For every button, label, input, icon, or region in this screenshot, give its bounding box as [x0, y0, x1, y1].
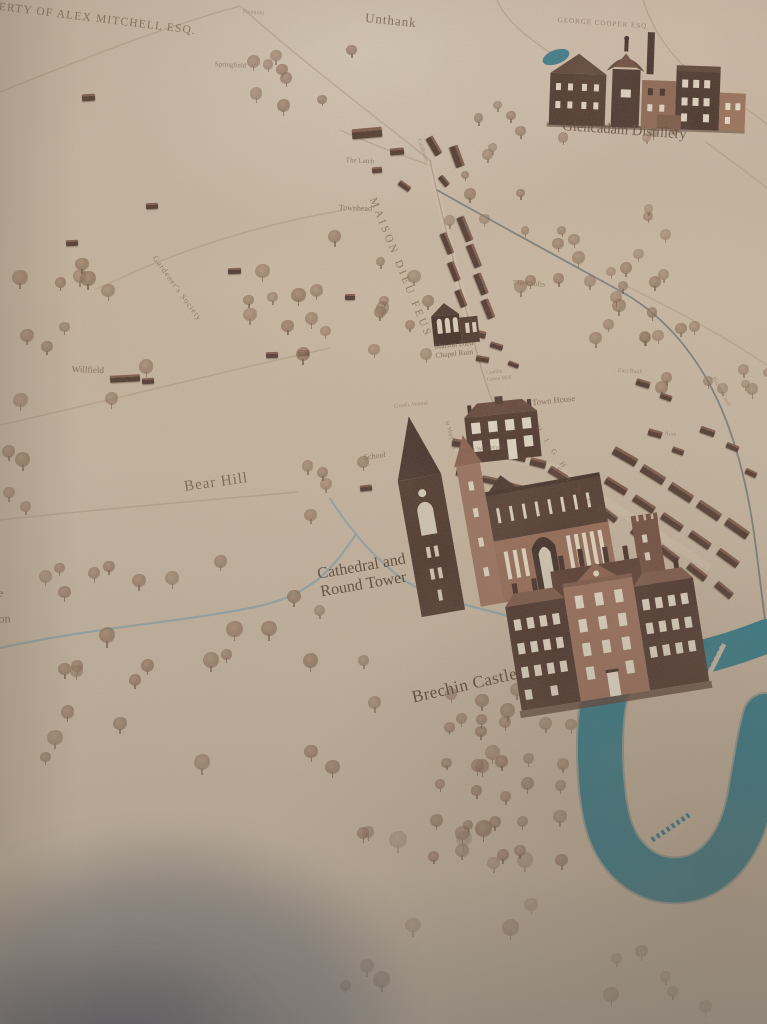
house-icon — [466, 243, 482, 268]
tree-icon — [444, 215, 456, 229]
tree-icon — [280, 72, 292, 87]
label-nether-west-wynd: Nether West Wynd — [459, 444, 505, 456]
label-dam-acre: Dam Acre — [651, 430, 676, 439]
maison-dieu-chapel-illustration — [425, 295, 486, 353]
house-icon — [456, 215, 473, 242]
tree-icon — [741, 380, 750, 391]
pagoda-kiln-icon — [605, 35, 646, 128]
tree-icon — [643, 212, 652, 224]
house-icon — [725, 442, 739, 452]
tree-icon — [647, 307, 658, 320]
tree-icon — [139, 359, 154, 377]
weir-icon — [652, 815, 692, 845]
house-icon — [451, 438, 474, 450]
tree-icon — [497, 849, 509, 864]
tree-icon — [763, 368, 767, 380]
house-icon — [397, 180, 411, 192]
tree-icon — [250, 87, 263, 103]
street-strips — [430, 160, 710, 568]
label-st-marys-st: St Mary's St — [442, 420, 457, 450]
tree-icon — [41, 341, 53, 356]
castle-center-block — [560, 557, 650, 701]
tree-icon — [510, 683, 524, 701]
tree-icon — [655, 381, 668, 397]
house-icon — [438, 174, 450, 187]
tree-icon — [101, 284, 114, 301]
tree-icon — [203, 652, 219, 672]
tree-icon — [376, 257, 385, 269]
tree-icon — [305, 312, 318, 329]
round-tower — [449, 433, 506, 607]
label-property-owner: PERTY OF ALEX MITCHELL ESQ. — [0, 0, 197, 39]
tree-icon — [661, 372, 672, 386]
house-icon — [266, 352, 278, 358]
cumlie-line1: Cumlie — [486, 369, 503, 376]
tree-icon — [80, 271, 96, 290]
tree-icon — [320, 478, 332, 493]
photographer-shadow-corner — [0, 940, 290, 1024]
house-icon — [647, 428, 662, 439]
tree-icon — [610, 291, 622, 306]
river-edge — [600, 660, 766, 880]
tree-icon — [70, 665, 82, 680]
distillery-left-block — [549, 53, 607, 127]
cumlie-line2: Green Well — [487, 374, 512, 382]
tree-icon — [261, 621, 277, 641]
house-icon — [640, 464, 667, 485]
tree-icon — [476, 714, 488, 729]
house-icon — [372, 167, 382, 174]
tree-icon — [296, 347, 310, 365]
tree-icon — [738, 364, 749, 378]
label-edge-partial-on: on — [0, 611, 11, 626]
river-south-esk — [600, 636, 767, 880]
tree-icon — [671, 119, 681, 131]
tree-icon — [320, 326, 331, 339]
label-maison-dieu-feus: MAISON DIEU FEUS — [366, 196, 434, 340]
road-latch — [340, 130, 432, 166]
tree-icon — [2, 445, 15, 461]
glencadam-distillery-illustration — [536, 24, 750, 151]
tree-icon — [506, 111, 516, 123]
tree-icon — [129, 674, 141, 689]
tree-icon — [558, 132, 569, 145]
castle-left-wing — [503, 586, 581, 711]
road-pond — [497, 0, 551, 53]
tree-icon — [435, 779, 445, 792]
house-icon — [688, 530, 712, 550]
mill-pond — [540, 46, 571, 69]
tree-icon — [640, 332, 651, 346]
house-icon — [716, 548, 740, 569]
tree-icon — [565, 719, 577, 734]
tree-icon — [304, 745, 318, 763]
tree-icon — [670, 126, 679, 137]
brechin-castle-illustration — [484, 507, 721, 728]
tree-icon — [243, 308, 256, 325]
field-line-2 — [0, 348, 330, 425]
tree-icon — [620, 262, 632, 277]
house-icon — [66, 240, 78, 247]
maison-dieu-lane-line — [430, 160, 505, 432]
house-icon — [481, 298, 496, 320]
tree-icon — [270, 50, 282, 65]
house-icon — [696, 499, 723, 521]
tree-icon — [214, 555, 227, 571]
label-willfield: Willfield — [72, 364, 104, 376]
tree-icon — [644, 204, 654, 216]
label-high: H I G H — [534, 424, 571, 472]
tree-icon — [71, 660, 83, 675]
label-cumlie-green-well: CumlieGreen Well — [486, 368, 512, 383]
tree-icon — [368, 696, 381, 713]
distillery-right-block — [675, 65, 721, 130]
tree-icon — [132, 574, 146, 592]
tree-icon — [59, 322, 70, 336]
tree-icon — [568, 234, 580, 249]
tree-icon — [633, 249, 644, 263]
tree-icon — [516, 189, 524, 200]
tree-icon — [589, 332, 602, 348]
house-icon — [454, 289, 467, 308]
tree-icon — [304, 509, 316, 525]
tree-icon — [523, 753, 535, 767]
tree-icon — [542, 684, 556, 701]
house-icon — [744, 468, 757, 479]
label-gardeners-society: Gardener's Society — [150, 254, 204, 323]
house-icon — [659, 392, 672, 402]
house-icon — [449, 145, 465, 169]
tree-icon — [517, 816, 528, 830]
house-icon — [507, 482, 524, 493]
tree-icon — [475, 820, 493, 843]
tree-icon — [405, 320, 415, 332]
castle-right-wing — [632, 566, 710, 691]
tree-icon — [514, 845, 526, 860]
tree-icon — [456, 831, 472, 851]
castle-rear-roof — [550, 558, 643, 600]
tree-icon — [485, 745, 500, 764]
house-icon — [476, 355, 490, 363]
tree-icon — [471, 785, 482, 799]
house-icon — [481, 475, 500, 486]
house-icon — [345, 294, 355, 300]
cathedral-illustration — [367, 385, 618, 620]
stream-skinners-burn — [0, 498, 600, 655]
tree-icon — [58, 663, 71, 680]
tree-icon — [194, 754, 210, 775]
tree-icon — [267, 292, 278, 306]
tree-icon — [572, 251, 585, 268]
tree-icon — [521, 226, 530, 237]
tree-icon — [20, 329, 33, 346]
tree-icon — [113, 717, 127, 734]
road-townhead — [95, 210, 345, 290]
house-icon — [660, 512, 684, 532]
tree-icon — [584, 275, 596, 290]
tree-icon — [20, 501, 31, 515]
chapel-label-line2: Chapel Ruin — [435, 347, 473, 360]
label-bear-hill: Bear Hill — [183, 469, 249, 496]
label-springfield: Springfield — [215, 60, 247, 70]
tree-icon — [243, 295, 254, 309]
tree-icon — [612, 299, 626, 316]
tree-icon — [618, 281, 628, 294]
field-line-3 — [0, 492, 298, 520]
tree-icon — [555, 854, 568, 870]
tree-icon — [247, 55, 260, 71]
house-icon — [426, 135, 443, 156]
tree-icon — [317, 467, 329, 482]
tree-icon — [287, 590, 301, 608]
label-bishops-close: Bishop's Close — [548, 466, 573, 500]
tree-icon — [539, 717, 552, 734]
tree-icon — [54, 563, 65, 577]
tree-icon — [75, 258, 88, 275]
label-the-latch: The Latch — [346, 156, 375, 166]
tree-icon — [493, 101, 502, 112]
house-icon — [390, 147, 405, 155]
tree-icon — [39, 570, 52, 587]
house-icon — [110, 374, 140, 383]
tree-icon — [649, 128, 658, 140]
tree-icon — [40, 752, 51, 766]
river-entry — [690, 636, 767, 660]
tree-icon — [328, 230, 341, 246]
tree-icon — [165, 571, 179, 589]
tree-icon — [314, 605, 325, 619]
tree-icon — [717, 383, 728, 396]
tree-icon — [555, 780, 567, 795]
tree-icon — [521, 777, 534, 793]
tree-icon — [514, 280, 527, 297]
river-loop — [600, 660, 766, 880]
house-icon — [724, 517, 750, 539]
label-maison-dieu-chapel: Maison DieuChapel Ruin — [434, 338, 475, 360]
house-icon — [507, 360, 519, 368]
house-icon — [146, 203, 158, 210]
tree-icon — [525, 275, 536, 289]
tree-icon — [357, 456, 369, 471]
label-street: S T R E E T — [554, 465, 618, 527]
tree-icon — [141, 659, 154, 675]
old-town-house-illustration — [456, 392, 549, 473]
house-icon — [503, 450, 526, 462]
tree-icon — [103, 561, 115, 576]
house-icon — [298, 350, 309, 356]
tree-icon — [557, 226, 566, 237]
map-photo: PERTY OF ALEX MITCHELL ESQ. Fountain Spr… — [0, 0, 767, 1024]
distillery-mid-block — [641, 80, 677, 129]
tree-icon — [482, 149, 493, 163]
stream-den-burn — [437, 190, 767, 636]
tree-icon — [3, 487, 15, 502]
tree-icon — [557, 758, 569, 773]
house-icon — [602, 508, 619, 523]
label-glencadam-distillery: Glencadam Distillery — [562, 118, 687, 144]
tree-icon — [689, 321, 700, 335]
tree-icon — [475, 726, 487, 741]
tree-icon — [47, 730, 63, 750]
tree-icon — [422, 295, 434, 310]
road-ne — [706, 142, 767, 188]
chapel-label-line1: Maison Dieu — [434, 338, 474, 351]
road-to-lane — [240, 6, 432, 162]
tree-icon — [474, 113, 484, 125]
tree-icon — [302, 460, 313, 474]
tree-icon — [13, 393, 28, 412]
house-icon — [630, 526, 653, 545]
tree-icon — [420, 348, 432, 363]
tree-icon — [376, 301, 390, 318]
tree-icon — [55, 277, 67, 291]
house-icon — [547, 465, 568, 482]
house-icon — [228, 268, 241, 274]
tree-icon — [658, 269, 670, 284]
tree-icon — [500, 791, 512, 806]
tree-icon — [226, 621, 243, 642]
castle-terrace — [520, 681, 713, 718]
house-icon — [447, 261, 461, 282]
tree-icon — [479, 214, 490, 228]
tree-icon — [515, 126, 525, 139]
label-east-bank: East Bank — [618, 368, 643, 376]
tree-icon — [660, 229, 671, 243]
tree-icon — [379, 296, 388, 308]
tree-icon — [475, 759, 489, 777]
tree-icon — [553, 810, 566, 827]
tree-icon — [428, 851, 439, 864]
tree-icon — [99, 627, 115, 648]
tree-icon — [461, 171, 469, 181]
tree-icon — [495, 755, 508, 772]
cathedral-label-line2: Round Tower — [319, 569, 408, 601]
tree-icon — [603, 319, 614, 332]
house-icon — [635, 378, 650, 389]
tree-icon — [553, 273, 564, 287]
tree-icon — [317, 95, 326, 107]
tree-icon — [488, 143, 497, 155]
tree-icon — [455, 844, 468, 861]
tree-icon — [455, 826, 469, 844]
tree-icon — [489, 816, 501, 832]
tree-icon — [606, 267, 615, 279]
house-icon — [671, 446, 684, 456]
tree-icon — [291, 288, 306, 306]
distillery-chimney — [646, 32, 654, 74]
road-distillery — [643, 0, 767, 124]
tree-icon — [552, 238, 563, 252]
label-old-town-house: Old Town House — [517, 393, 576, 409]
label-cathedral: Cathedral andRound Tower — [316, 550, 410, 602]
label-george-cooper: GEORGE COOPER ESQ. — [557, 16, 650, 31]
tree-icon — [652, 330, 663, 344]
castle-keep-tower — [631, 512, 668, 585]
tree-icon — [15, 452, 30, 471]
label-townhead: Townhead — [339, 203, 373, 214]
house-icon — [699, 426, 715, 438]
house-icon — [714, 581, 734, 600]
tree-icon — [430, 814, 443, 830]
tree-icon — [346, 45, 357, 59]
high-street-strip — [455, 448, 710, 568]
house-icon — [477, 444, 498, 455]
tree-icon — [73, 269, 87, 287]
house-icon — [632, 494, 656, 514]
house-icon — [604, 476, 629, 496]
house-icon — [611, 446, 638, 467]
tree-icon — [277, 99, 290, 115]
distillery-annex — [719, 93, 746, 132]
tree-icon — [471, 759, 485, 776]
tree-icon — [276, 64, 288, 79]
house-icon — [489, 341, 503, 351]
house-icon — [469, 328, 486, 339]
house-icon — [565, 480, 584, 497]
tree-icon — [441, 758, 451, 771]
tree-icon — [303, 653, 318, 672]
house-icon — [440, 232, 455, 255]
tree-icon — [368, 344, 380, 359]
field-line-1 — [0, 6, 240, 92]
tree-icon — [703, 376, 713, 389]
house-icon — [142, 378, 154, 385]
distillery-front-annex — [657, 115, 681, 130]
house-icon — [686, 562, 708, 582]
tree-icon — [105, 392, 118, 408]
label-the-crofts: The Crofts — [513, 278, 546, 289]
tree-icon — [444, 722, 454, 735]
tree-icon — [61, 705, 75, 722]
weir-icon — [702, 642, 724, 680]
tree-icon — [463, 820, 473, 833]
label-caldhame: Caldhame — [414, 138, 429, 163]
label-gords-vennel: Gord's Vennel — [394, 400, 428, 411]
tree-icon — [649, 276, 661, 291]
tree-icon — [500, 703, 515, 722]
label-fountain: Fountain — [242, 9, 264, 18]
tree-icon — [642, 133, 651, 145]
house-icon — [668, 482, 695, 504]
tree-icon — [255, 264, 270, 283]
tree-icon — [221, 649, 232, 663]
house-icon — [360, 484, 373, 491]
house-icon — [583, 493, 602, 510]
cathedral-nave — [483, 458, 619, 602]
field-lines — [0, 0, 767, 520]
road-east — [618, 282, 767, 365]
cathedral-label-line1: Cathedral and — [316, 550, 407, 582]
house-icon — [529, 457, 546, 469]
tree-icon — [445, 688, 457, 703]
house-icon — [658, 544, 680, 564]
tree-icon — [310, 284, 323, 300]
house-icon — [473, 272, 489, 295]
tree-icon — [746, 383, 759, 399]
tree-icon — [88, 567, 100, 583]
tree-icon — [639, 331, 651, 345]
tree-icon — [499, 716, 511, 731]
label-edge-partial-e: e — [0, 586, 3, 600]
house-icon — [352, 127, 383, 140]
tree-icon — [358, 655, 369, 669]
tree-icon — [475, 694, 489, 711]
house-icon — [456, 468, 475, 478]
tree-icon — [374, 306, 386, 322]
house-icon — [82, 94, 95, 102]
tree-icon — [407, 270, 420, 287]
tree-icon — [675, 323, 687, 338]
